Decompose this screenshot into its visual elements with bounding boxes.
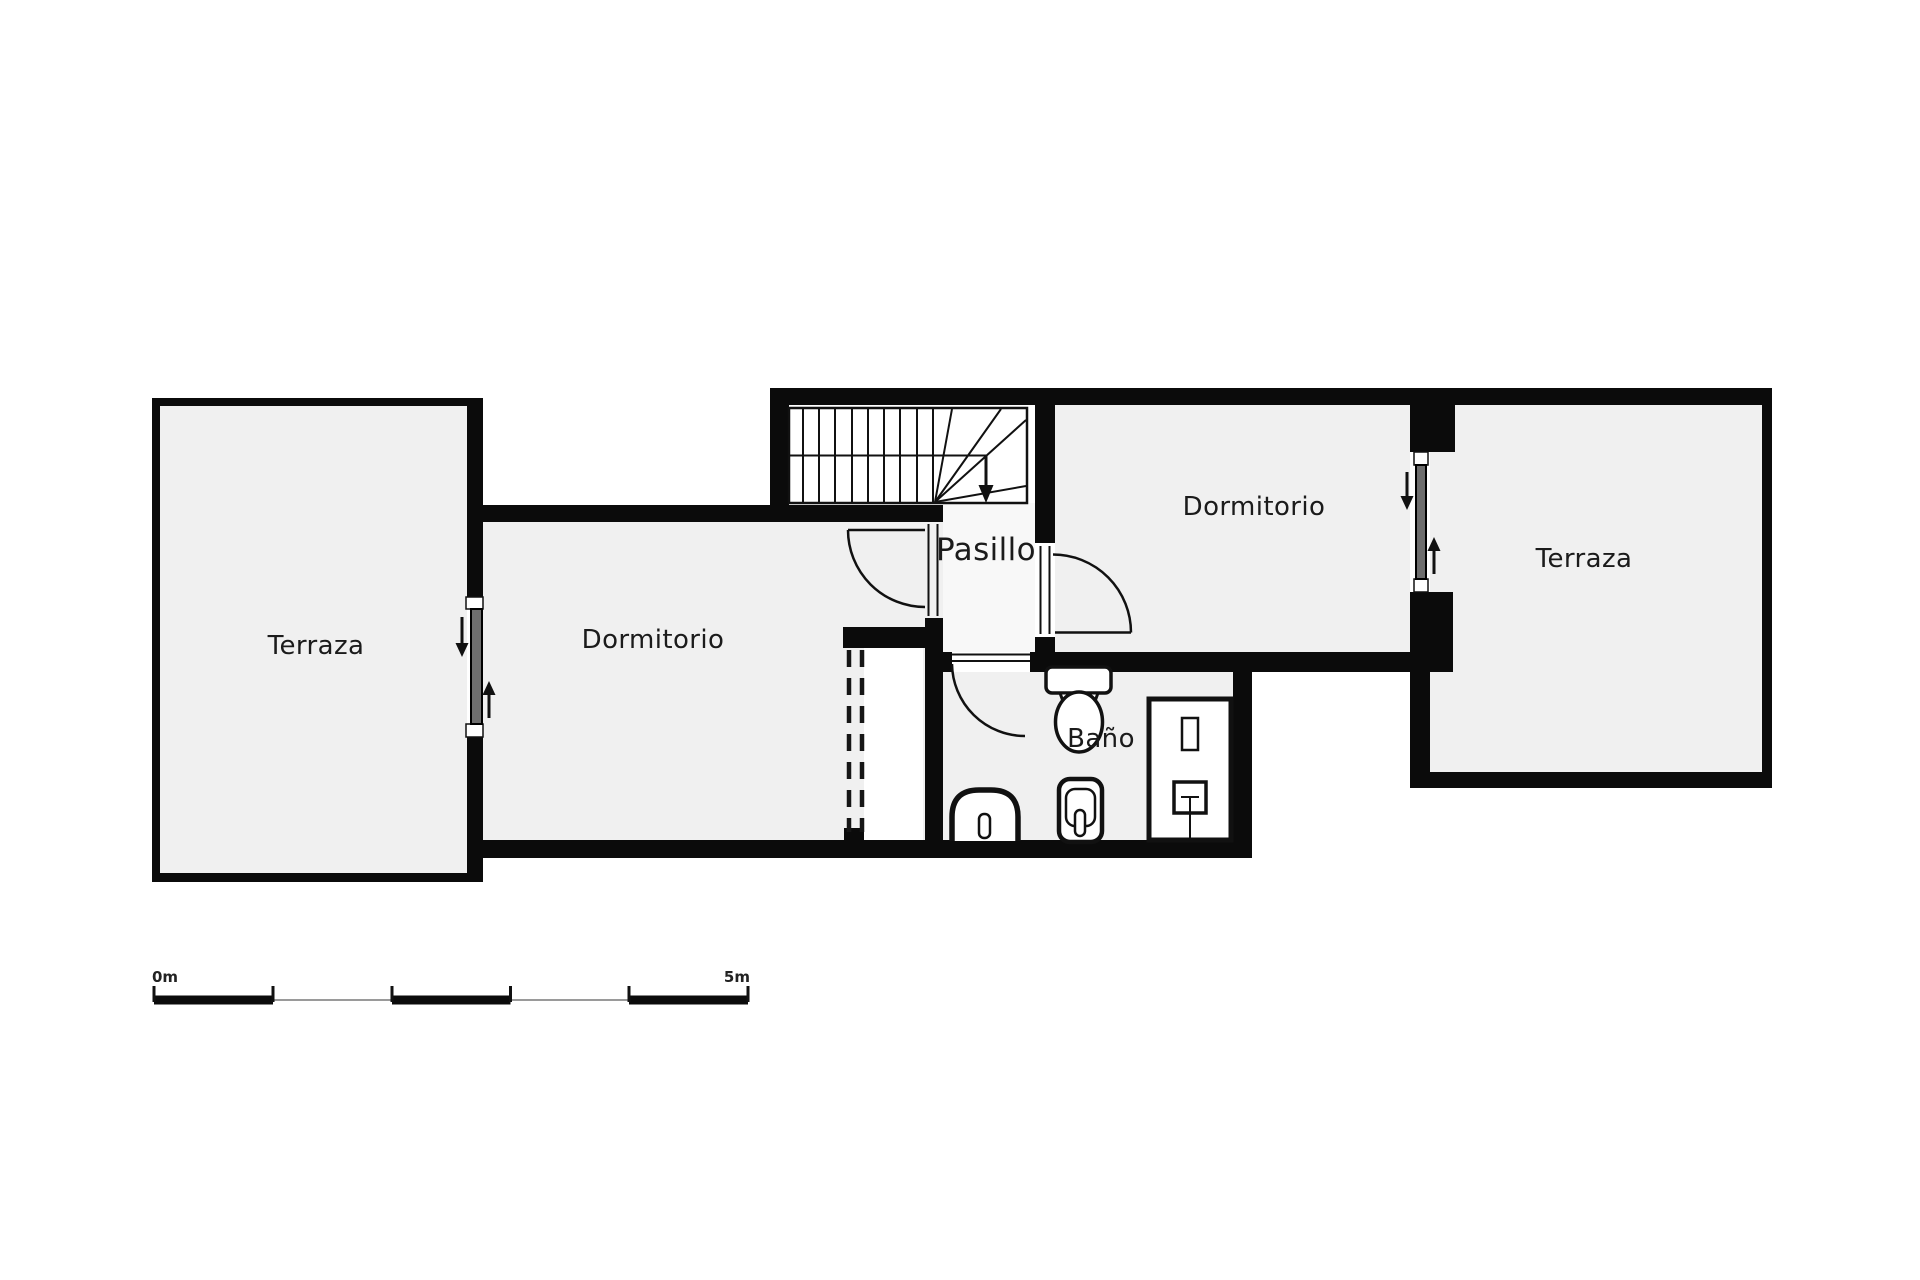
wall bbox=[925, 652, 952, 672]
wall bbox=[1412, 772, 1772, 788]
wall bbox=[1035, 637, 1055, 662]
bano-label: Baño bbox=[1067, 724, 1135, 754]
terraza-right-floor bbox=[1430, 405, 1762, 772]
staircase bbox=[789, 408, 1027, 503]
wall bbox=[152, 398, 483, 406]
sliding-door-terraza-right bbox=[1414, 452, 1428, 592]
wall bbox=[467, 505, 943, 522]
glass-panel bbox=[471, 609, 482, 724]
pasillo-label: Pasillo bbox=[936, 532, 1036, 568]
wall bbox=[843, 627, 927, 648]
door-sill bbox=[1414, 579, 1428, 592]
door-sill bbox=[466, 724, 483, 737]
wall bbox=[1410, 667, 1430, 788]
wall bbox=[152, 873, 483, 882]
scale-bar bbox=[154, 986, 748, 1002]
shower bbox=[1149, 699, 1231, 840]
wall bbox=[1410, 388, 1455, 452]
wall bbox=[770, 388, 1772, 405]
wall bbox=[1410, 592, 1453, 672]
floor-plan: Terraza Dormitorio Pasillo Baño Dormitor… bbox=[0, 0, 1920, 1280]
pasillo-floor bbox=[943, 503, 1035, 652]
wall bbox=[467, 840, 1250, 858]
closet-interior bbox=[864, 648, 923, 840]
washbasin bbox=[952, 790, 1018, 841]
scale-end-label: 5m bbox=[724, 968, 750, 986]
scale-start-label: 0m bbox=[152, 968, 178, 986]
dormitorio-left-label: Dormitorio bbox=[582, 625, 725, 655]
wall bbox=[770, 388, 789, 520]
wall bbox=[467, 398, 483, 598]
dormitorio-right-floor bbox=[1055, 405, 1410, 652]
wall bbox=[152, 398, 160, 882]
glass-panel bbox=[1416, 465, 1426, 579]
dormitorio-right-label: Dormitorio bbox=[1183, 492, 1326, 522]
terraza-right-label: Terraza bbox=[1536, 544, 1633, 574]
wall bbox=[1035, 405, 1055, 543]
wall bbox=[467, 736, 483, 882]
door-sill bbox=[1414, 452, 1428, 465]
bidet bbox=[1059, 779, 1102, 842]
door-sill bbox=[466, 597, 483, 609]
terraza-left-label: Terraza bbox=[268, 631, 365, 661]
sliding-door-terraza-left bbox=[466, 597, 483, 737]
wall bbox=[1233, 670, 1252, 858]
wall bbox=[1762, 388, 1772, 788]
